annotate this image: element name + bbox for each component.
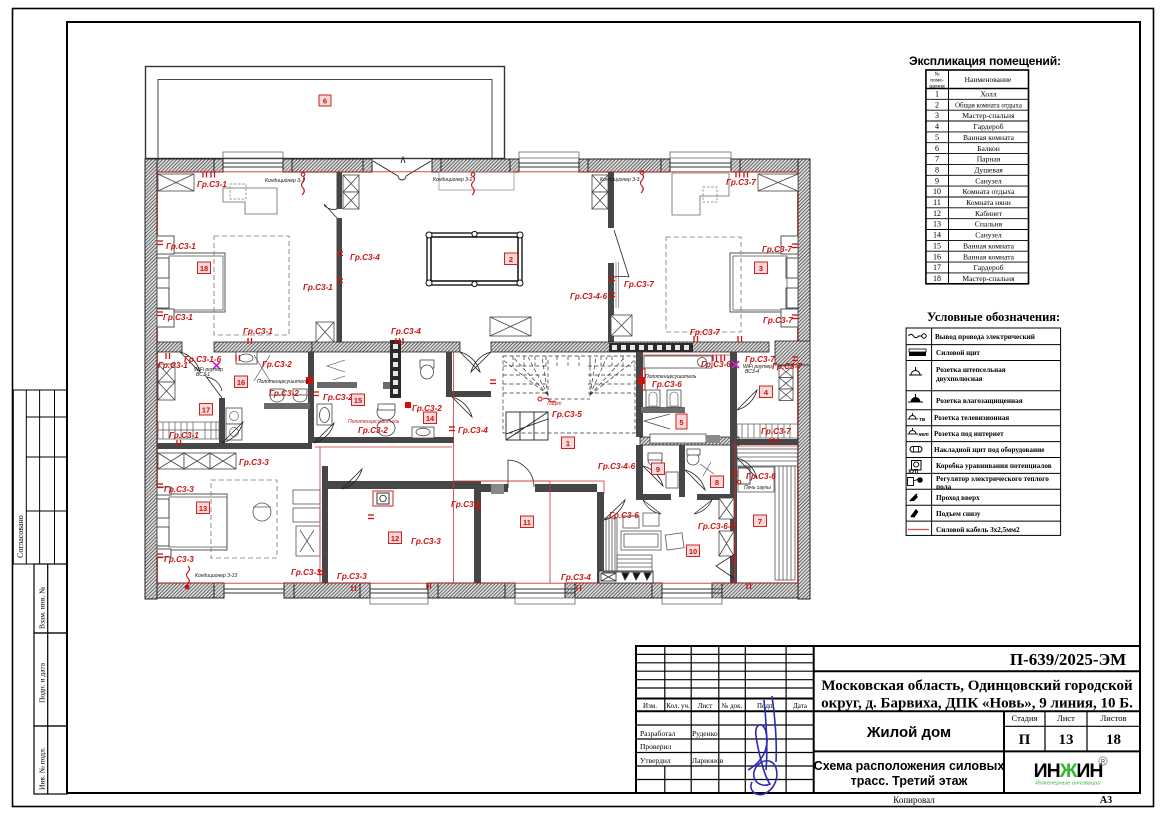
svg-text:13: 13	[199, 504, 207, 513]
svg-text:3: 3	[759, 264, 763, 273]
svg-text:Ларионов: Ларионов	[692, 756, 724, 765]
svg-text:9: 9	[935, 176, 939, 185]
svg-text:№ док.: № док.	[722, 702, 743, 710]
svg-text:17: 17	[202, 406, 210, 415]
svg-text:Спальня: Спальня	[975, 220, 1003, 229]
svg-text:Гр.С3-4: Гр.С3-4	[391, 327, 421, 336]
svg-text:Листов: Листов	[1101, 713, 1127, 723]
svg-text:9: 9	[656, 465, 660, 474]
svg-text:Инв. № подл.: Инв. № подл.	[38, 747, 47, 790]
svg-text:Жилой дом: Жилой дом	[866, 724, 951, 741]
svg-text:Гр.С3-7: Гр.С3-7	[761, 427, 791, 436]
svg-text:Гр.С3-7: Гр.С3-7	[745, 355, 775, 364]
svg-text:8: 8	[715, 478, 719, 487]
svg-text:Гр.С3-7: Гр.С3-7	[726, 178, 756, 187]
svg-text:Гр.С3-7: Гр.С3-7	[690, 328, 720, 337]
svg-text:Общая комната отдыха: Общая комната отдыха	[955, 102, 1022, 109]
svg-text:Изм.: Изм.	[643, 702, 657, 710]
svg-text:Гр.С3-7: Гр.С3-7	[762, 245, 792, 254]
svg-text:П-639/2025-ЭМ: П-639/2025-ЭМ	[1010, 650, 1126, 669]
svg-text:Мастер-спальня: Мастер-спальня	[962, 111, 1015, 120]
svg-text:Кондиционер 3-13: Кондиционер 3-13	[195, 573, 237, 579]
svg-text:1: 1	[935, 90, 939, 99]
svg-text:Силовой щит: Силовой щит	[936, 349, 980, 357]
svg-text:18: 18	[1106, 732, 1121, 748]
svg-text:ВС3-1: ВС3-1	[196, 372, 210, 378]
svg-text:R: R	[1101, 760, 1106, 766]
svg-text:Балкон: Балкон	[977, 144, 1000, 153]
svg-text:Полотенцесушитель: Полотенцесушитель	[257, 379, 309, 385]
svg-text:Кондиционер 3-3: Кондиционер 3-3	[600, 177, 640, 183]
svg-text:П: П	[1019, 732, 1031, 748]
svg-text:Накладной щит под оборудование: Накладной щит под оборудование	[934, 446, 1045, 454]
svg-text:2: 2	[509, 255, 513, 264]
svg-text:двухполюсная: двухполюсная	[936, 375, 983, 383]
svg-text:Гр.С3-3: Гр.С3-3	[291, 568, 321, 577]
svg-text:трасс. Третий этаж: трасс. Третий этаж	[851, 774, 968, 788]
svg-text:Санузел: Санузел	[975, 176, 1002, 185]
svg-text:Мастер-спальня: Мастер-спальня	[962, 274, 1015, 283]
svg-text:Утвердил: Утвердил	[640, 756, 671, 765]
svg-text:Холл: Холл	[980, 90, 996, 99]
svg-text:Гр.С3-3: Гр.С3-3	[337, 572, 367, 581]
svg-text:тв: тв	[919, 417, 926, 423]
svg-text:12: 12	[933, 209, 941, 218]
svg-text:Подп.: Подп.	[757, 702, 775, 710]
svg-text:Гр.С3-7: Гр.С3-7	[624, 280, 654, 289]
svg-text:12: 12	[391, 534, 399, 543]
svg-text:Московская область, Одинцовски: Московская область, Одинцовский городско…	[821, 678, 1133, 694]
svg-text:Ванная комната: Ванная комната	[963, 241, 1015, 250]
svg-text:18: 18	[933, 274, 941, 283]
svg-text:Гр.С3-4: Гр.С3-4	[458, 426, 488, 435]
svg-text:16: 16	[237, 378, 245, 387]
svg-text:Согласовано: Согласовано	[16, 515, 25, 558]
svg-text:Стадия: Стадия	[1012, 713, 1038, 723]
svg-text:3: 3	[935, 111, 939, 120]
svg-text:15: 15	[933, 241, 941, 250]
svg-text:Силовой кабель 3х2,5мм2: Силовой кабель 3х2,5мм2	[936, 526, 1020, 534]
svg-text:Дата: Дата	[793, 702, 808, 710]
svg-text:Инженерные инновации: Инженерные инновации	[1035, 781, 1101, 787]
svg-text:Гр.С3-1: Гр.С3-1	[163, 313, 193, 322]
svg-text:Гр.С3-6: Гр.С3-6	[746, 472, 776, 481]
svg-text:7: 7	[935, 155, 939, 164]
svg-text:15: 15	[354, 396, 362, 405]
svg-text:10: 10	[689, 547, 697, 556]
svg-text:Гр.С3-1: Гр.С3-1	[169, 431, 199, 440]
svg-text:Гр.С3-2: Гр.С3-2	[323, 393, 353, 402]
svg-text:Гардероб: Гардероб	[974, 122, 1004, 131]
svg-text:Гр.С3-7: Гр.С3-7	[763, 316, 793, 325]
svg-text:Розетка под интернет: Розетка под интернет	[934, 430, 1004, 438]
svg-text:11: 11	[933, 198, 941, 207]
svg-text:округ, д. Барвиха, ДПК «Новь»,: округ, д. Барвиха, ДПК «Новь», 9 линия, …	[821, 696, 1133, 712]
svg-text:8: 8	[935, 166, 939, 175]
svg-text:Вывод провода электрический: Вывод провода электрический	[935, 333, 1035, 341]
svg-text:Коробка уравнивания потенциало: Коробка уравнивания потенциалов	[936, 462, 1052, 470]
svg-text:Гр.С3-4-6: Гр.С3-4-6	[598, 462, 636, 471]
svg-text:Экспликация помещений:: Экспликация помещений:	[909, 54, 1061, 68]
svg-text:17: 17	[933, 263, 941, 272]
svg-text:Гр.С3-2: Гр.С3-2	[358, 426, 388, 435]
svg-text:13: 13	[1059, 732, 1074, 748]
svg-text:Розетка телевизионная: Розетка телевизионная	[934, 414, 1009, 422]
svg-text:18: 18	[200, 264, 208, 273]
svg-text:Ванная комната: Ванная комната	[963, 133, 1015, 142]
svg-text:10: 10	[933, 187, 941, 196]
svg-text:Гр.С3-1: Гр.С3-1	[303, 283, 333, 292]
svg-text:Кол. уч.: Кол. уч.	[666, 702, 690, 710]
svg-text:Гр.С3-6: Гр.С3-6	[652, 380, 682, 389]
svg-text:Подъем снизу: Подъем снизу	[936, 510, 981, 518]
svg-text:Гр.С3-2: Гр.С3-2	[262, 360, 292, 369]
svg-text:5: 5	[679, 418, 683, 427]
svg-text:Гардероб: Гардероб	[974, 263, 1004, 272]
svg-text:Кондиционер 3-1: Кондиционер 3-1	[265, 178, 305, 184]
svg-text:ВС3-4: ВС3-4	[745, 369, 759, 375]
svg-text:Проверил: Проверил	[640, 742, 672, 751]
svg-text:Руденко: Руденко	[692, 729, 718, 738]
svg-text:6: 6	[323, 97, 327, 106]
svg-text:Гр.С3-1: Гр.С3-1	[243, 327, 273, 336]
svg-text:Гр.С3-3: Гр.С3-3	[411, 537, 441, 546]
svg-text:Копировал: Копировал	[893, 795, 935, 805]
svg-text:Душевая: Душевая	[974, 166, 1003, 175]
svg-text:Печь сауны: Печь сауны	[744, 485, 771, 491]
svg-text:Санузел: Санузел	[975, 231, 1002, 240]
svg-text:Взам. инв. №: Взам. инв. №	[38, 587, 47, 629]
svg-text:7: 7	[758, 517, 762, 526]
svg-text:5: 5	[935, 133, 939, 142]
svg-text:Гр.С3-5: Гр.С3-5	[552, 410, 582, 419]
svg-text:Гр.С3-2: Гр.С3-2	[269, 389, 299, 398]
svg-text:4: 4	[935, 122, 939, 131]
svg-text:Гр.С3-1: Гр.С3-1	[197, 180, 227, 189]
svg-text:Гр.С3-3: Гр.С3-3	[239, 458, 269, 467]
svg-text:Гр.С3-4-6: Гр.С3-4-6	[570, 292, 608, 301]
svg-text:Гр.С3-1: Гр.С3-1	[166, 242, 196, 251]
svg-text:Гр.С3-4: Гр.С3-4	[350, 253, 380, 262]
svg-text:1: 1	[566, 439, 570, 448]
svg-text:Лист: Лист	[1057, 713, 1075, 723]
svg-text:Гр.С3-3: Гр.С3-3	[164, 485, 194, 494]
svg-text:Наименование: Наименование	[965, 75, 1012, 84]
svg-text:6: 6	[935, 144, 939, 153]
svg-text:Розетка влагозащищенная: Розетка влагозащищенная	[936, 397, 1023, 405]
svg-text:Подп. и дата: Подп. и дата	[38, 662, 47, 703]
svg-text:Разработал: Разработал	[640, 729, 676, 738]
svg-text:Комната няни: Комната няни	[966, 198, 1011, 207]
svg-text:2: 2	[935, 100, 939, 109]
svg-text:КУП: КУП	[909, 469, 919, 475]
svg-text:Кабинет: Кабинет	[975, 209, 1003, 218]
svg-text:11: 11	[523, 518, 531, 527]
svg-text:Лифт: Лифт	[546, 401, 562, 407]
svg-text:13: 13	[933, 220, 941, 229]
svg-text:Гр.С3-6-П: Гр.С3-6-П	[698, 522, 738, 531]
svg-text:Проход вверх: Проход вверх	[936, 494, 980, 502]
svg-text:пола: пола	[936, 483, 952, 491]
svg-text:14: 14	[933, 231, 941, 240]
svg-text:16: 16	[933, 252, 941, 261]
svg-text:Гр.С3-6: Гр.С3-6	[609, 511, 639, 520]
svg-text:Кондиционер 3-2: Кондиционер 3-2	[433, 177, 473, 183]
svg-text:Гр.С3-4: Гр.С3-4	[561, 573, 591, 582]
svg-text:Схема расположения силовых: Схема расположения силовых	[814, 759, 1005, 773]
svg-text:Полотенцесушитель: Полотенцесушитель	[348, 419, 400, 425]
svg-text:Ванная комната: Ванная комната	[963, 252, 1015, 261]
svg-text:Розетка штепсельная: Розетка штепсельная	[936, 366, 1006, 374]
svg-text:14: 14	[426, 414, 435, 423]
svg-text:Гр.С3-3: Гр.С3-3	[164, 555, 194, 564]
svg-text:А3: А3	[1100, 795, 1112, 806]
svg-text:Условные обозначения:: Условные обозначения:	[927, 310, 1060, 324]
svg-text:Лист: Лист	[698, 702, 713, 710]
svg-text:нет: нет	[919, 432, 930, 438]
svg-text:Гр.С3-6: Гр.С3-6	[701, 360, 731, 369]
svg-text:Гр.С3-7: Гр.С3-7	[772, 362, 802, 371]
svg-text:Комната отдыха: Комната отдыха	[962, 187, 1015, 196]
svg-text:Гр.С3-1-6: Гр.С3-1-6	[184, 355, 222, 364]
svg-text:Парная: Парная	[977, 155, 1001, 164]
svg-text:Гр.С3-3: Гр.С3-3	[451, 500, 481, 509]
svg-text:ИНЖИН: ИНЖИН	[1034, 760, 1103, 782]
svg-text:Регулятор электрического тепло: Регулятор электрического теплого	[936, 475, 1049, 483]
